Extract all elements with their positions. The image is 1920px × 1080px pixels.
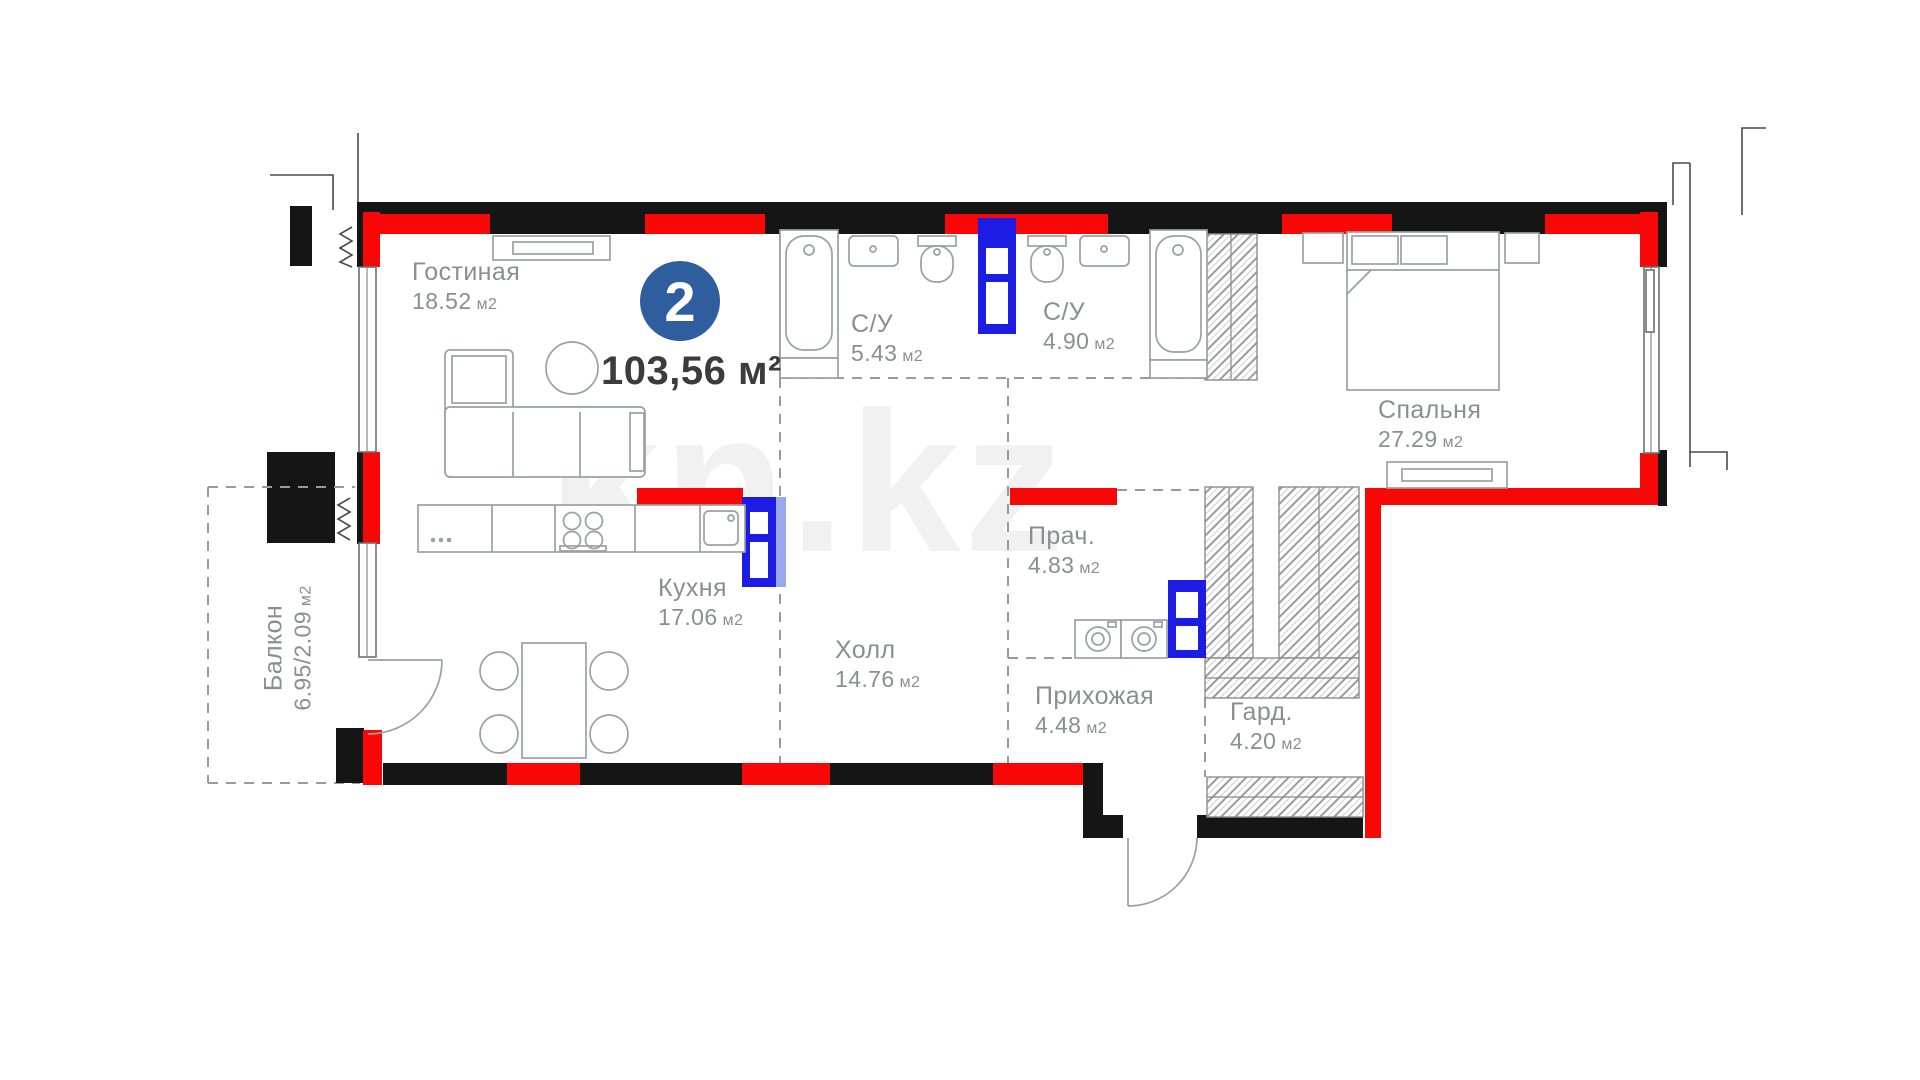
total-area-label: 103,56 м² (601, 349, 782, 394)
room-name: С/У (851, 310, 923, 340)
room-area: 17.06м2 (658, 604, 743, 631)
room-area: 18.52м2 (412, 288, 520, 315)
room-name: Холл (835, 636, 920, 666)
area-unit: м2 (1086, 720, 1107, 737)
sink-1 (849, 236, 898, 266)
room-area: 4.20м2 (1230, 728, 1302, 755)
room-name: Прач. (1028, 522, 1100, 552)
toilet-2 (1028, 236, 1066, 282)
room-label-living: Гостиная 18.52м2 (412, 258, 520, 315)
room-area: 4.83м2 (1028, 552, 1100, 579)
room-area: 27.29м2 (1378, 426, 1481, 453)
area-unit: м2 (723, 612, 744, 629)
area-unit: м2 (900, 674, 921, 691)
balcony-door (368, 660, 442, 734)
room-area: 4.90м2 (1043, 328, 1115, 355)
nightstand-left (1303, 233, 1343, 263)
door-kitchen (742, 497, 786, 587)
washing-machines (1075, 620, 1167, 658)
floor-plan-page: kn.kz (0, 0, 1920, 1080)
kitchen-counter (418, 505, 745, 552)
room-area: 6.95/2.09м2 (289, 585, 316, 710)
area-unit: м2 (1094, 336, 1115, 353)
room-name: Прихожая (1035, 682, 1154, 712)
room-label-kitchen: Кухня 17.06м2 (658, 574, 743, 631)
bed (1347, 232, 1499, 390)
toilet-1 (918, 236, 956, 282)
bathtub-2 (1150, 230, 1207, 378)
door-bathrooms (978, 218, 1016, 334)
area-unit: м2 (477, 296, 498, 313)
room-label-balcony: Балкон 6.95/2.09м2 (260, 585, 317, 710)
facade-lines (267, 128, 1766, 543)
sink-2 (1080, 236, 1129, 266)
entrance-door (1128, 838, 1197, 906)
room-label-hall: Холл 14.76м2 (835, 636, 920, 693)
room-label-bath2: С/У 4.90м2 (1043, 298, 1115, 355)
room-label-bath1: С/У 5.43м2 (851, 310, 923, 367)
room-area: 5.43м2 (851, 340, 923, 367)
area-unit: м2 (297, 585, 314, 606)
room-label-laundry: Прач. 4.83м2 (1028, 522, 1100, 579)
room-name: Кухня (658, 574, 743, 604)
room-name: Балкон (260, 585, 290, 710)
nightstand-right (1505, 233, 1539, 263)
floor-plan-canvas (0, 0, 1920, 1080)
area-unit: м2 (1443, 434, 1464, 451)
door-wardrobe (1168, 580, 1206, 658)
room-name: Гостиная (412, 258, 520, 288)
room-label-entry: Прихожая 4.48м2 (1035, 682, 1154, 739)
side-table (546, 342, 598, 394)
room-name: Гард. (1230, 698, 1302, 728)
bathtub-1 (780, 230, 838, 378)
room-name: С/У (1043, 298, 1115, 328)
bench (1387, 462, 1507, 488)
area-unit: м2 (902, 348, 923, 365)
room-area: 14.76м2 (835, 666, 920, 693)
area-unit: м2 (1281, 736, 1302, 753)
room-label-bedroom: Спальня 27.29м2 (1378, 396, 1481, 453)
room-name: Спальня (1378, 396, 1481, 426)
room-label-wardrobe: Гард. 4.20м2 (1230, 698, 1302, 755)
area-unit: м2 (1079, 560, 1100, 577)
room-area: 4.48м2 (1035, 712, 1154, 739)
dining-table (480, 643, 628, 758)
kitchen-fixtures (418, 505, 745, 758)
unit-number-badge: 2 (640, 261, 720, 341)
